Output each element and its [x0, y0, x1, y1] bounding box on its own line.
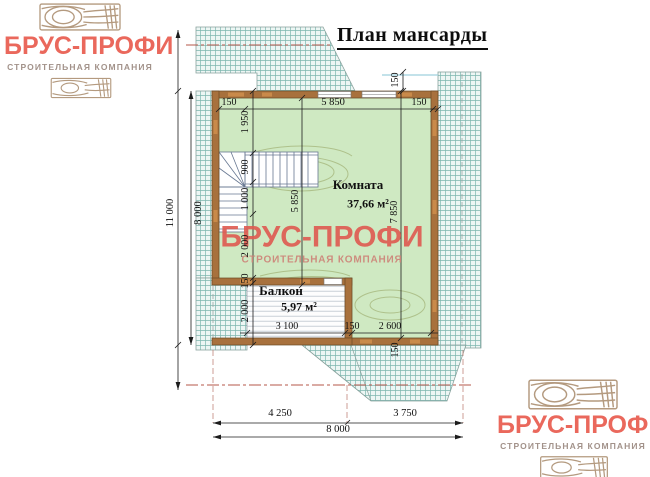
dim-chain-2000a: 2 000: [241, 235, 251, 258]
wood-log-icon: [32, 2, 128, 32]
room-name-label: Комната: [333, 177, 384, 193]
dim-top-width: 5 850: [321, 98, 345, 109]
dim-outer-height: 11 000: [166, 199, 177, 228]
dim-bottom-right: 3 750: [393, 409, 417, 420]
balcony-name-label: Балкон: [259, 283, 303, 299]
dim-balcony-wall: 150: [345, 322, 360, 332]
page-title: План мансарды: [337, 24, 488, 50]
dim-bottom-left: 4 250: [268, 409, 292, 420]
dim-right-height: 7 850: [390, 201, 400, 224]
dim-room-height: 5 850: [291, 190, 301, 213]
dim-inner-height: 8 000: [194, 201, 205, 225]
brand-name: БРУС-ПРОФИ: [497, 413, 649, 438]
dim-chain-2000b: 2 000: [241, 300, 251, 323]
room-area-label: 37,66 м²: [347, 197, 389, 212]
wood-log-icon: [537, 455, 611, 477]
dim-total-width: 8 000: [323, 425, 353, 436]
dim-chain-150: 150: [241, 274, 251, 289]
attic-plan-page: БРУС-ПРОФИ СТРОИТЕЛЬНАЯ КОМПАНИЯ БРУС-: [0, 0, 650, 477]
dim-chain-1000: 1 000: [241, 188, 251, 211]
dim-bottom-wall: 150: [391, 343, 401, 358]
brand-tagline: СТРОИТЕЛЬНАЯ КОМПАНИЯ: [4, 62, 156, 72]
dim-chain-1950: 1 950: [241, 111, 251, 134]
dim-roof-offset: 150: [391, 73, 401, 88]
balcony-area-label: 5,97 м²: [281, 300, 317, 315]
dim-top-left-wall: 150: [222, 98, 237, 108]
wood-log-icon: [526, 378, 620, 411]
logo-bottom-right: БРУС-ПРОФИ СТРОИТЕЛЬНАЯ КОМПАНИЯ: [497, 378, 649, 477]
logo-top-left: БРУС-ПРОФИ СТРОИТЕЛЬНАЯ КОМПАНИЯ: [4, 2, 156, 102]
dim-top-right-wall: 150: [412, 98, 427, 108]
dim-chain-900: 900: [241, 160, 251, 175]
dim-balcony-width: 3 100: [276, 322, 299, 332]
brand-tagline: СТРОИТЕЛЬНАЯ КОМПАНИЯ: [497, 441, 649, 451]
brand-name: БРУС-ПРОФИ: [4, 34, 156, 59]
wood-log-icon: [50, 76, 112, 100]
dim-extension-width: 2 600: [379, 322, 402, 332]
